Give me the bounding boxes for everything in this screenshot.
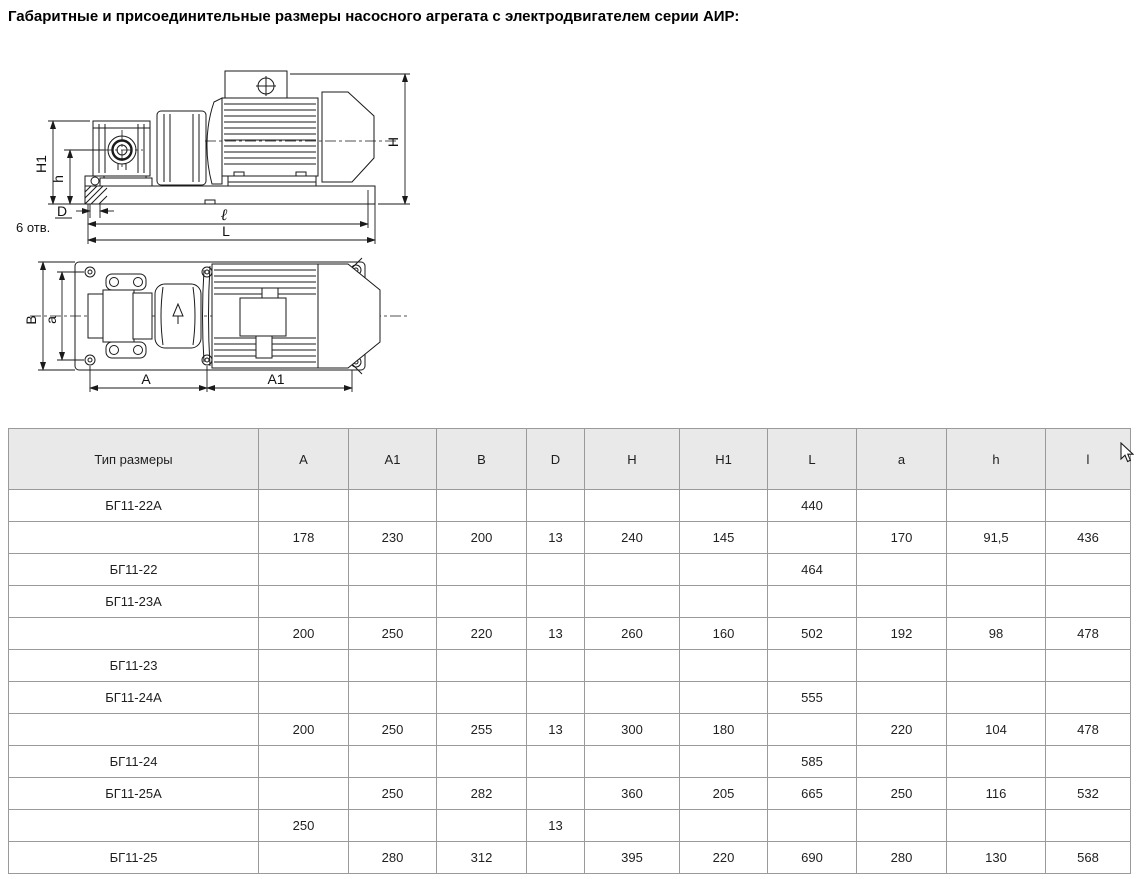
value-cell (259, 650, 349, 682)
table-row: 1782302001324014517091,5436 (9, 522, 1131, 554)
value-cell: 178 (259, 522, 349, 554)
col-header: h (947, 429, 1046, 490)
value-cell: 170 (857, 522, 947, 554)
holes-count-note: 6 отв. (16, 220, 50, 235)
table-row: БГ11-25280312395220690280130568 (9, 842, 1131, 874)
dim-label-h: h (50, 175, 66, 183)
value-cell (259, 778, 349, 810)
value-cell (1046, 554, 1131, 586)
value-cell (857, 682, 947, 714)
dimensions-table: Тип размерыAA1BDHH1Lahl БГ11-22А44017823… (8, 428, 1131, 874)
value-cell (437, 554, 527, 586)
value-cell (947, 746, 1046, 778)
value-cell: 145 (680, 522, 768, 554)
col-header: A1 (349, 429, 437, 490)
value-cell (527, 490, 585, 522)
dim-label-a: a (43, 316, 59, 324)
value-cell (768, 714, 857, 746)
value-cell (947, 682, 1046, 714)
value-cell: 255 (437, 714, 527, 746)
value-cell (1046, 746, 1131, 778)
dim-label-D: D (57, 203, 67, 219)
value-cell (437, 490, 527, 522)
table-row: БГ11-24585 (9, 746, 1131, 778)
value-cell (857, 554, 947, 586)
type-cell (9, 810, 259, 842)
value-cell: 230 (349, 522, 437, 554)
value-cell: 160 (680, 618, 768, 650)
value-cell: 436 (1046, 522, 1131, 554)
value-cell (857, 490, 947, 522)
value-cell (349, 554, 437, 586)
type-cell (9, 618, 259, 650)
value-cell (857, 650, 947, 682)
value-cell (947, 810, 1046, 842)
type-cell (9, 522, 259, 554)
value-cell (349, 650, 437, 682)
type-cell: БГ11-25А (9, 778, 259, 810)
table-row: 25013 (9, 810, 1131, 842)
value-cell (947, 650, 1046, 682)
dim-label-B: B (23, 315, 39, 324)
col-header: l (1046, 429, 1131, 490)
coupling-guard-side (157, 111, 206, 185)
value-cell (680, 490, 768, 522)
value-cell (585, 810, 680, 842)
value-cell: 13 (527, 618, 585, 650)
dim-label-H: H (385, 137, 401, 147)
value-cell (527, 650, 585, 682)
pump-unit-side-view-drawing: H H1 h D 6 отв. ℓ L (0, 58, 420, 250)
value-cell: 130 (947, 842, 1046, 874)
value-cell: 13 (527, 810, 585, 842)
value-cell: 200 (259, 618, 349, 650)
value-cell: 180 (680, 714, 768, 746)
value-cell: 240 (585, 522, 680, 554)
table-row: 2002502201326016050219298478 (9, 618, 1131, 650)
value-cell: 478 (1046, 714, 1131, 746)
value-cell: 260 (585, 618, 680, 650)
value-cell: 568 (1046, 842, 1131, 874)
table-row: БГ11-25А250282360205665250116532 (9, 778, 1131, 810)
value-cell: 280 (857, 842, 947, 874)
value-cell (527, 778, 585, 810)
value-cell: 280 (349, 842, 437, 874)
terminal-box (225, 71, 287, 98)
value-cell (437, 810, 527, 842)
value-cell: 502 (768, 618, 857, 650)
value-cell (585, 554, 680, 586)
value-cell: 300 (585, 714, 680, 746)
value-cell (680, 554, 768, 586)
type-cell (9, 714, 259, 746)
fan-cover-top (318, 264, 380, 368)
value-cell (1046, 810, 1131, 842)
fan-cover-side (322, 92, 374, 182)
value-cell (527, 554, 585, 586)
col-header: H1 (680, 429, 768, 490)
value-cell: 395 (585, 842, 680, 874)
value-cell (585, 586, 680, 618)
dim-label-A: A (141, 371, 151, 387)
value-cell (680, 682, 768, 714)
col-header: D (527, 429, 585, 490)
value-cell (437, 682, 527, 714)
value-cell: 250 (349, 714, 437, 746)
col-header: H (585, 429, 680, 490)
value-cell (1046, 490, 1131, 522)
value-cell: 464 (768, 554, 857, 586)
value-cell (680, 650, 768, 682)
type-cell: БГ11-22 (9, 554, 259, 586)
value-cell: 205 (680, 778, 768, 810)
table-row: БГ11-22464 (9, 554, 1131, 586)
value-cell (527, 682, 585, 714)
type-cell: БГ11-24А (9, 682, 259, 714)
type-cell: БГ11-23А (9, 586, 259, 618)
value-cell (259, 554, 349, 586)
value-cell: 13 (527, 522, 585, 554)
value-cell: 585 (768, 746, 857, 778)
value-cell: 13 (527, 714, 585, 746)
table-row: БГ11-22А440 (9, 490, 1131, 522)
value-cell: 104 (947, 714, 1046, 746)
value-cell (437, 586, 527, 618)
page-title: Габаритные и присоединительные размеры н… (8, 8, 1008, 25)
value-cell (947, 490, 1046, 522)
value-cell: 98 (947, 618, 1046, 650)
value-cell: 192 (857, 618, 947, 650)
col-header: A (259, 429, 349, 490)
value-cell (768, 650, 857, 682)
table-row: 20025025513300180220104478 (9, 714, 1131, 746)
pump-unit-top-view-drawing: B a A A1 (0, 246, 420, 414)
value-cell: 282 (437, 778, 527, 810)
value-cell: 440 (768, 490, 857, 522)
value-cell (1046, 682, 1131, 714)
value-cell: 200 (259, 714, 349, 746)
dim-label-L: L (222, 223, 230, 239)
value-cell (437, 746, 527, 778)
col-header-type: Тип размеры (9, 429, 259, 490)
dim-label-A1: A1 (267, 371, 284, 387)
value-cell (259, 842, 349, 874)
value-cell: 665 (768, 778, 857, 810)
value-cell: 220 (680, 842, 768, 874)
value-cell (585, 650, 680, 682)
value-cell (768, 810, 857, 842)
motor-side (205, 71, 398, 186)
value-cell (1046, 586, 1131, 618)
value-cell (768, 586, 857, 618)
value-cell (680, 586, 768, 618)
value-cell (527, 746, 585, 778)
value-cell: 250 (259, 810, 349, 842)
value-cell: 250 (349, 778, 437, 810)
value-cell: 690 (768, 842, 857, 874)
table-row: БГ11-24А555 (9, 682, 1131, 714)
pump-side (93, 121, 152, 186)
value-cell: 478 (1046, 618, 1131, 650)
value-cell: 200 (437, 522, 527, 554)
coupling-top (155, 284, 201, 348)
col-header: L (768, 429, 857, 490)
value-cell (259, 682, 349, 714)
mouse-cursor-icon (1120, 442, 1134, 464)
value-cell (259, 586, 349, 618)
value-cell: 360 (585, 778, 680, 810)
value-cell (527, 586, 585, 618)
table-row: БГ11-23 (9, 650, 1131, 682)
value-cell: 250 (349, 618, 437, 650)
value-cell (768, 522, 857, 554)
value-cell (1046, 650, 1131, 682)
header-row: Тип размерыAA1BDHH1Lahl (9, 429, 1131, 490)
value-cell (349, 682, 437, 714)
col-header: B (437, 429, 527, 490)
type-cell: БГ11-24 (9, 746, 259, 778)
value-cell (349, 746, 437, 778)
value-cell (259, 490, 349, 522)
value-cell (585, 490, 680, 522)
value-cell (585, 682, 680, 714)
value-cell: 555 (768, 682, 857, 714)
value-cell: 220 (437, 618, 527, 650)
table-body: БГ11-22А4401782302001324014517091,5436БГ… (9, 490, 1131, 874)
dim-label-H1: H1 (33, 155, 49, 173)
value-cell: 250 (857, 778, 947, 810)
value-cell: 116 (947, 778, 1046, 810)
table-row: БГ11-23А (9, 586, 1131, 618)
value-cell: 532 (1046, 778, 1131, 810)
value-cell (585, 746, 680, 778)
value-cell (680, 746, 768, 778)
value-cell (857, 746, 947, 778)
value-cell (349, 490, 437, 522)
value-cell: 312 (437, 842, 527, 874)
value-cell (857, 586, 947, 618)
value-cell: 91,5 (947, 522, 1046, 554)
value-cell (259, 746, 349, 778)
value-cell (947, 586, 1046, 618)
value-cell (857, 810, 947, 842)
value-cell (947, 554, 1046, 586)
type-cell: БГ11-23 (9, 650, 259, 682)
value-cell: 220 (857, 714, 947, 746)
value-cell (349, 810, 437, 842)
motor-top (203, 264, 381, 368)
value-cell (680, 810, 768, 842)
value-cell (527, 842, 585, 874)
dim-label-l-script: ℓ (221, 205, 228, 224)
type-cell: БГ11-22А (9, 490, 259, 522)
col-header: a (857, 429, 947, 490)
value-cell (437, 650, 527, 682)
value-cell (349, 586, 437, 618)
type-cell: БГ11-25 (9, 842, 259, 874)
